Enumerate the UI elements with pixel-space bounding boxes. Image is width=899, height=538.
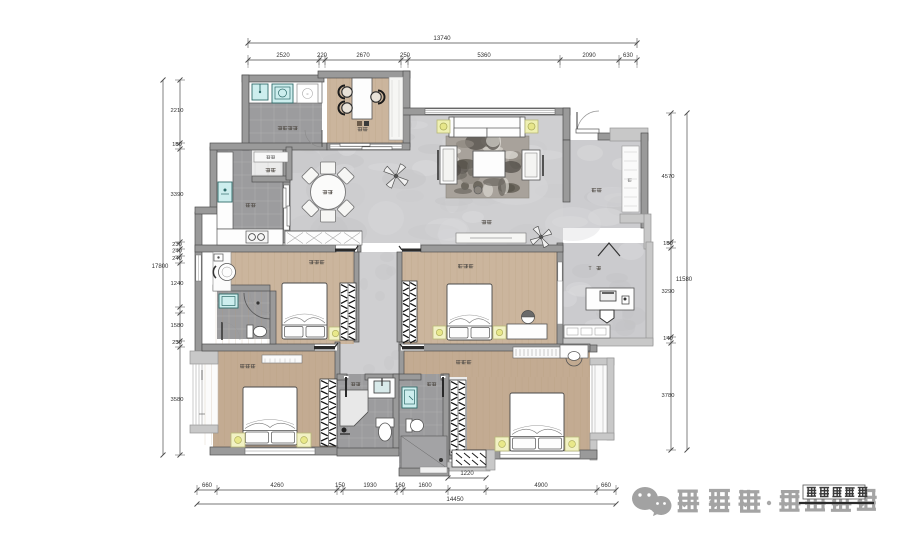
svg-text:1240: 1240 <box>171 281 184 287</box>
svg-text:240: 240 <box>172 249 182 255</box>
svg-text:c: c <box>307 91 309 96</box>
svg-text:14450: 14450 <box>446 496 464 503</box>
svg-text:240: 240 <box>172 256 182 262</box>
svg-text:3290: 3290 <box>662 289 675 295</box>
svg-text:3390: 3390 <box>171 192 184 198</box>
svg-text:220: 220 <box>317 53 328 59</box>
svg-text:2210: 2210 <box>171 108 184 114</box>
svg-text:T: T <box>588 266 591 272</box>
svg-text:1580: 1580 <box>171 323 184 329</box>
svg-text:17800: 17800 <box>152 264 169 270</box>
svg-text:230: 230 <box>172 242 182 248</box>
svg-text:230: 230 <box>172 340 182 346</box>
svg-text:4260: 4260 <box>270 483 284 489</box>
svg-text:13740: 13740 <box>433 35 451 42</box>
svg-text:3580: 3580 <box>171 397 184 403</box>
svg-text:660: 660 <box>601 483 612 489</box>
svg-text:3780: 3780 <box>662 393 675 399</box>
svg-text:4900: 4900 <box>534 483 548 489</box>
svg-text:630: 630 <box>623 53 634 59</box>
svg-text:2520: 2520 <box>276 53 290 59</box>
svg-text:660: 660 <box>202 483 213 489</box>
svg-text:1930: 1930 <box>363 483 377 489</box>
svg-text:140: 140 <box>663 336 673 342</box>
svg-text:250: 250 <box>400 53 411 59</box>
svg-text:180: 180 <box>172 142 182 148</box>
svg-text:2090: 2090 <box>582 53 596 59</box>
svg-text:5360: 5360 <box>477 53 491 59</box>
svg-text:4570: 4570 <box>662 174 675 180</box>
svg-text:11580: 11580 <box>676 277 693 283</box>
svg-text:180: 180 <box>663 241 673 247</box>
svg-text:2670: 2670 <box>356 53 370 59</box>
svg-text:1600: 1600 <box>418 483 432 489</box>
svg-text:150: 150 <box>335 483 346 489</box>
svg-text:1220: 1220 <box>460 471 474 477</box>
svg-text:160: 160 <box>395 483 406 489</box>
